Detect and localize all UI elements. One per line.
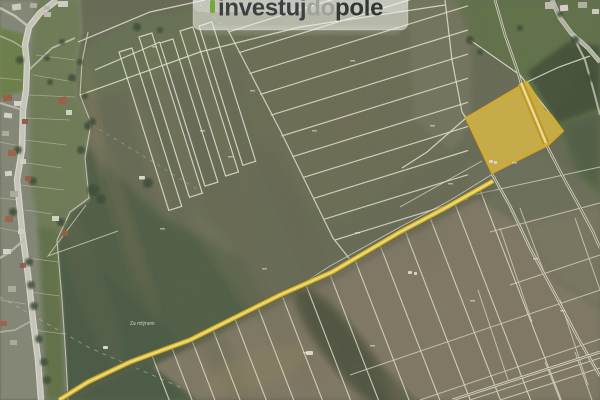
svg-text:investujdopole: investujdopole xyxy=(218,0,383,22)
